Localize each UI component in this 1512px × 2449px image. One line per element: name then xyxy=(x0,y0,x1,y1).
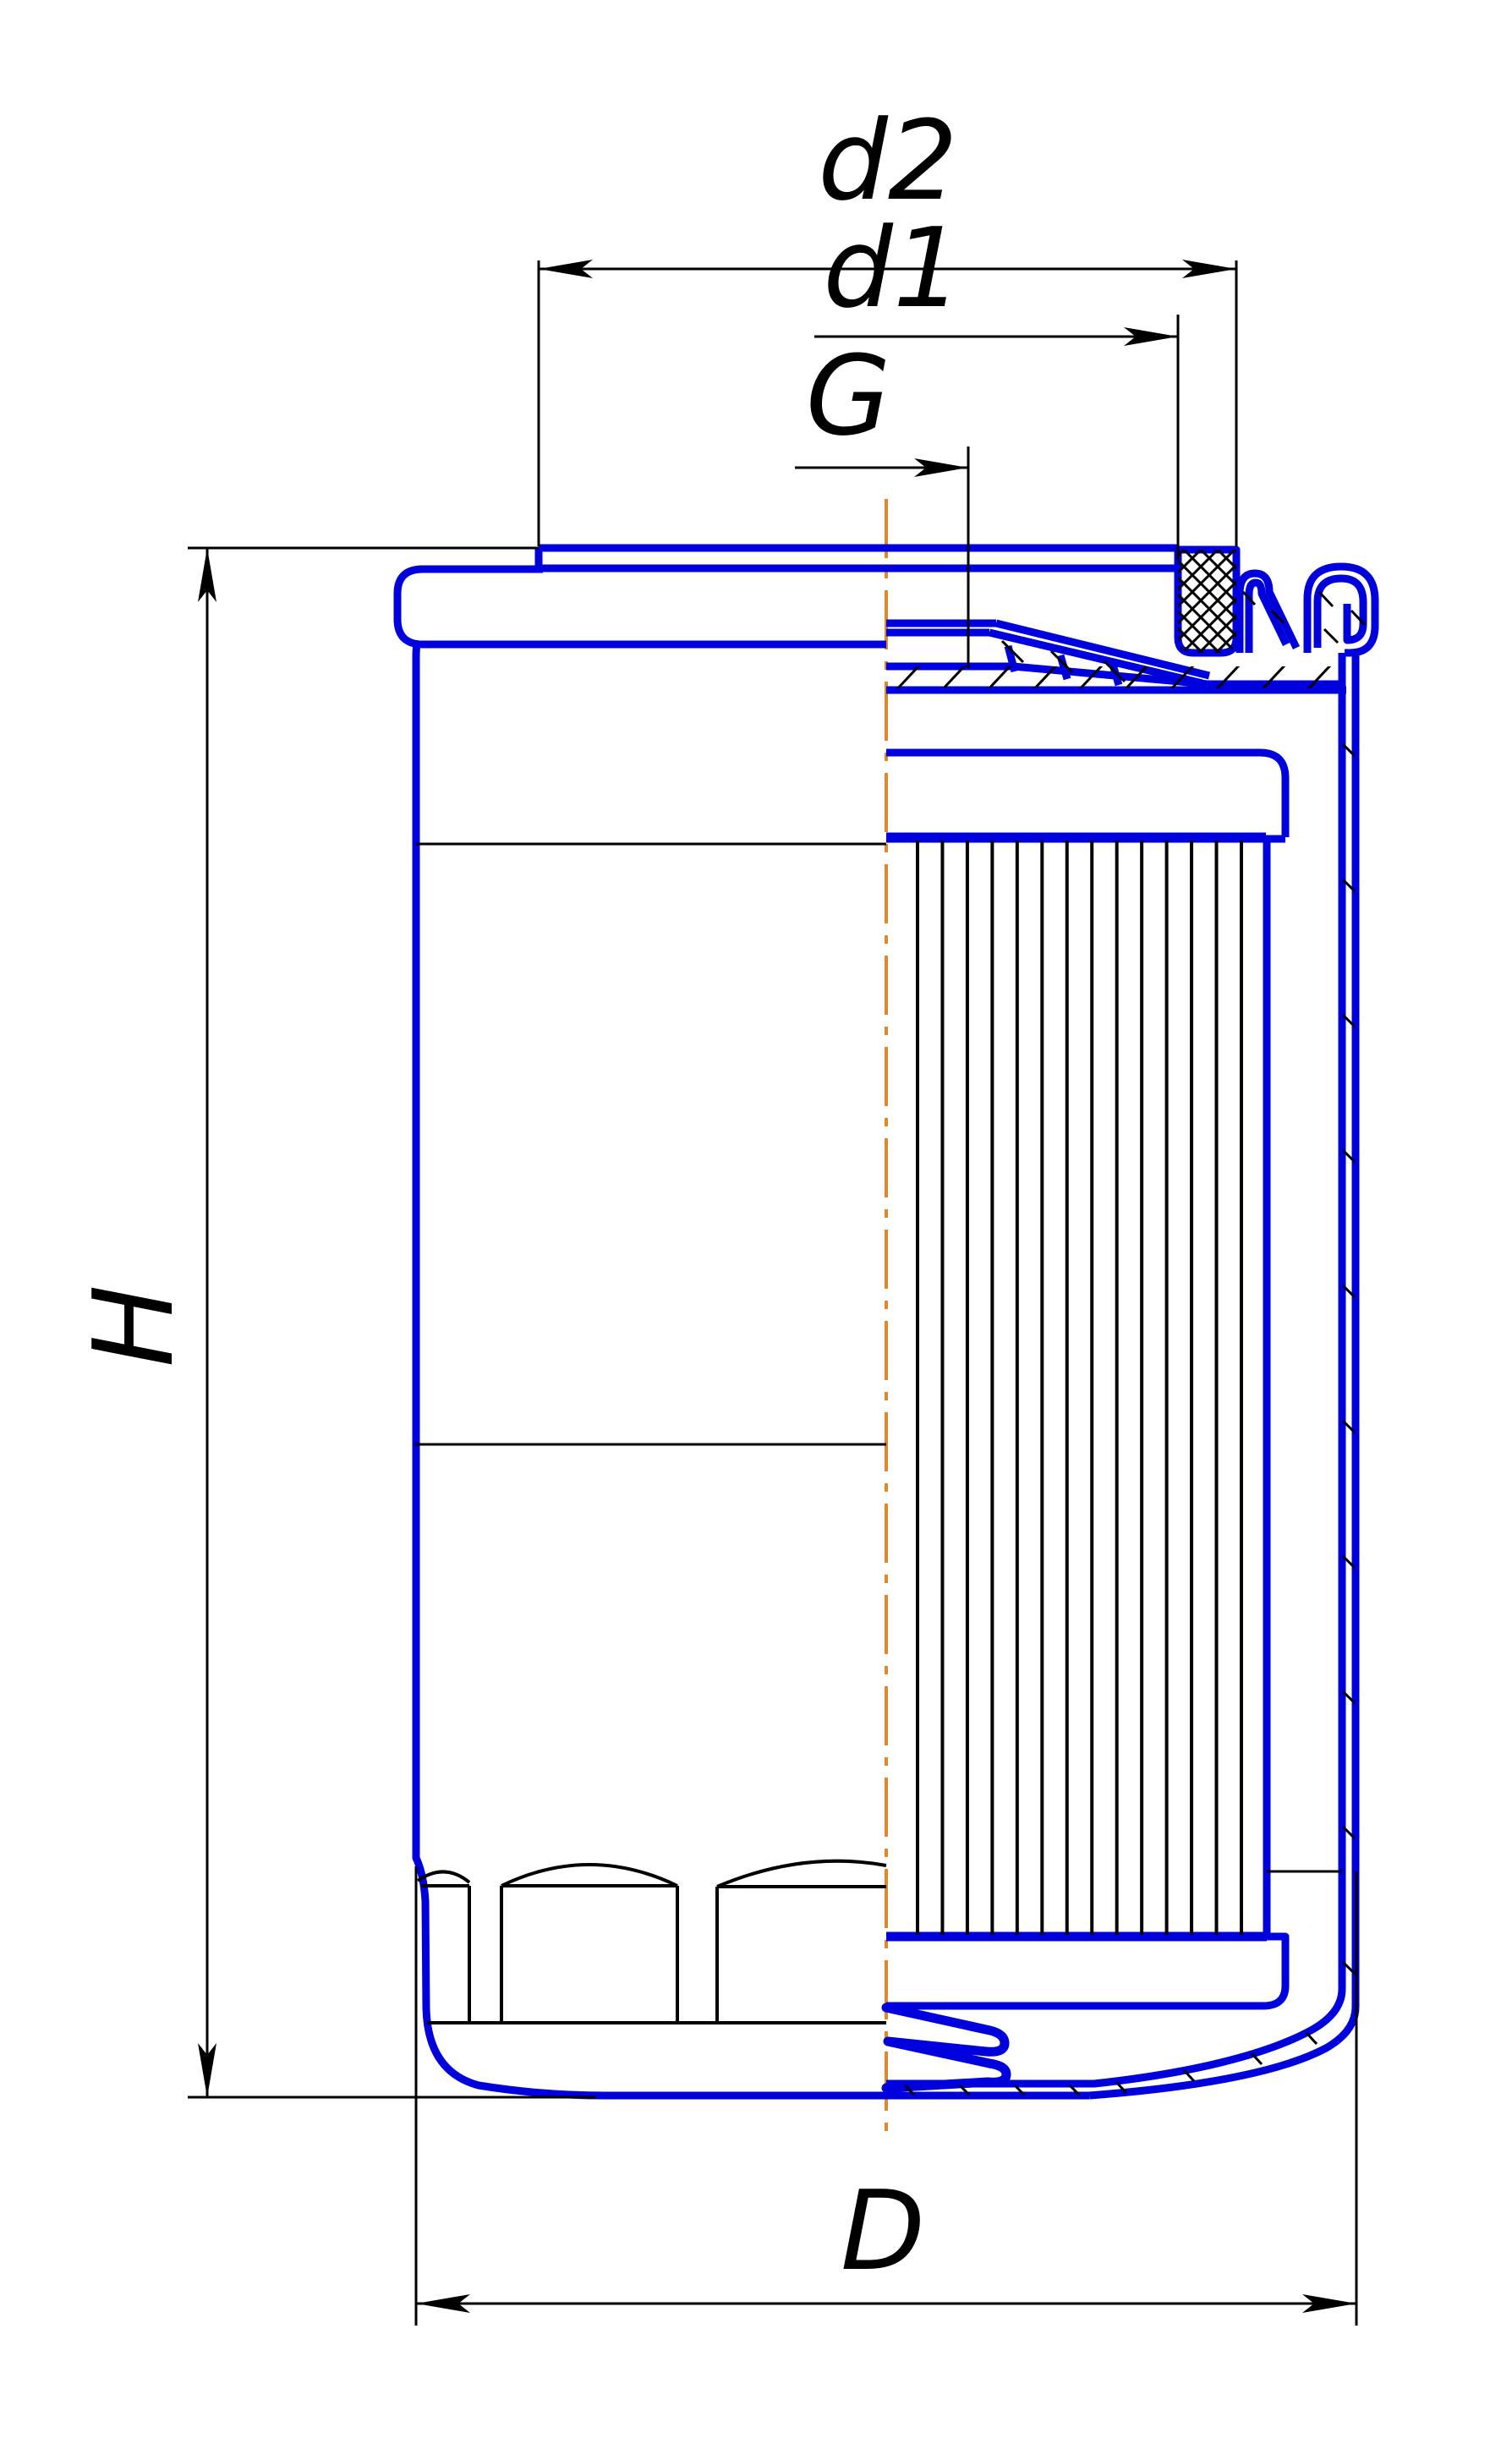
dimensions: d2 d1 G H D xyxy=(69,96,1356,2326)
label-g: G xyxy=(806,331,891,460)
dome-2 xyxy=(501,1865,677,2023)
top-flange xyxy=(397,569,886,644)
element-bottom-cap xyxy=(886,1937,1285,2006)
seam-curl-inner xyxy=(1318,578,1363,648)
bottom-spring xyxy=(886,2008,1006,2088)
bottom-stamped-domes xyxy=(418,1861,886,2023)
label-d: D xyxy=(841,2167,925,2295)
filter-pleats xyxy=(918,841,1241,1935)
can-wall-right-outer xyxy=(1089,653,1356,2096)
label-h: H xyxy=(69,1285,198,1367)
can-wall-right-inner xyxy=(886,653,1342,2084)
detail-lines xyxy=(415,592,1365,2023)
skirt-hatch-tick xyxy=(1307,2033,1317,2044)
element-top-cap xyxy=(886,753,1285,839)
dome-3 xyxy=(717,1861,886,2023)
oil-filter-section-drawing: d2 d1 G H D xyxy=(0,0,1512,2449)
technical-drawing: d2 d1 G H D xyxy=(0,0,1512,2449)
label-d1: d1 xyxy=(823,204,962,332)
top-plate xyxy=(539,548,1178,568)
